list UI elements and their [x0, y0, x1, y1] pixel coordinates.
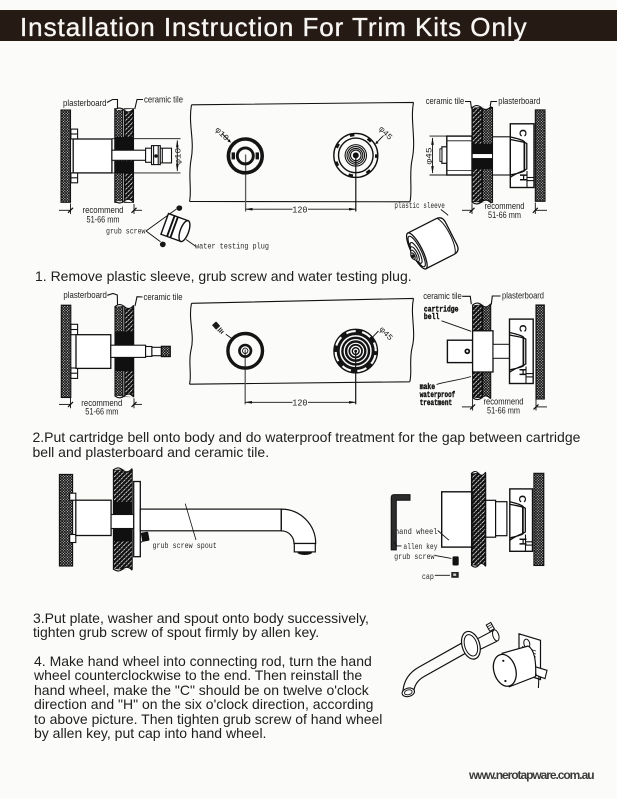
svg-text:H: H — [516, 538, 528, 546]
svg-text:plastic sleeve: plastic sleeve — [394, 201, 445, 211]
svg-text:120: 120 — [292, 399, 307, 409]
svg-text:grub screw: grub screw — [106, 227, 146, 237]
svg-text:C: C — [517, 129, 529, 137]
svg-text:51-66 mm: 51-66 mm — [488, 210, 521, 221]
svg-text:treatment: treatment — [420, 398, 452, 408]
svg-text:ceramic tile: ceramic tile — [423, 291, 462, 302]
svg-text:grub screw: grub screw — [394, 552, 435, 562]
svg-text:C: C — [516, 325, 528, 333]
svg-text:φ10: φ10 — [174, 148, 183, 165]
svg-text:plasterboard: plasterboard — [498, 96, 540, 107]
svg-text:H: H — [517, 174, 529, 182]
svg-text:cap: cap — [422, 572, 434, 582]
svg-text:grub screw spout: grub screw spout — [153, 541, 217, 551]
svg-text:allen key: allen key — [403, 542, 437, 552]
svg-text:ceramic tile: ceramic tile — [144, 292, 183, 303]
svg-text:120: 120 — [292, 205, 307, 215]
svg-text:ceramic tile: ceramic tile — [144, 94, 183, 105]
svg-text:hand wheel: hand wheel — [395, 527, 438, 537]
svg-text:plasterboard: plasterboard — [63, 98, 107, 109]
svg-text:φ45: φ45 — [377, 326, 394, 343]
svg-text:plasterboard: plasterboard — [502, 290, 544, 301]
svg-text:51-66 mm: 51-66 mm — [87, 214, 120, 225]
svg-text:H: H — [517, 368, 529, 376]
svg-text:bell: bell — [424, 312, 439, 322]
svg-text:C: C — [516, 495, 528, 503]
svg-text:φ10: φ10 — [213, 126, 230, 143]
svg-text:51-66 mm: 51-66 mm — [487, 405, 520, 416]
svg-text:water testing plug: water testing plug — [195, 241, 269, 251]
svg-text:plasterboard: plasterboard — [63, 290, 107, 301]
svg-text:ceramic tile: ceramic tile — [426, 96, 465, 107]
svg-text:φ45: φ45 — [426, 147, 435, 164]
svg-text:51-66 mm: 51-66 mm — [85, 407, 118, 418]
